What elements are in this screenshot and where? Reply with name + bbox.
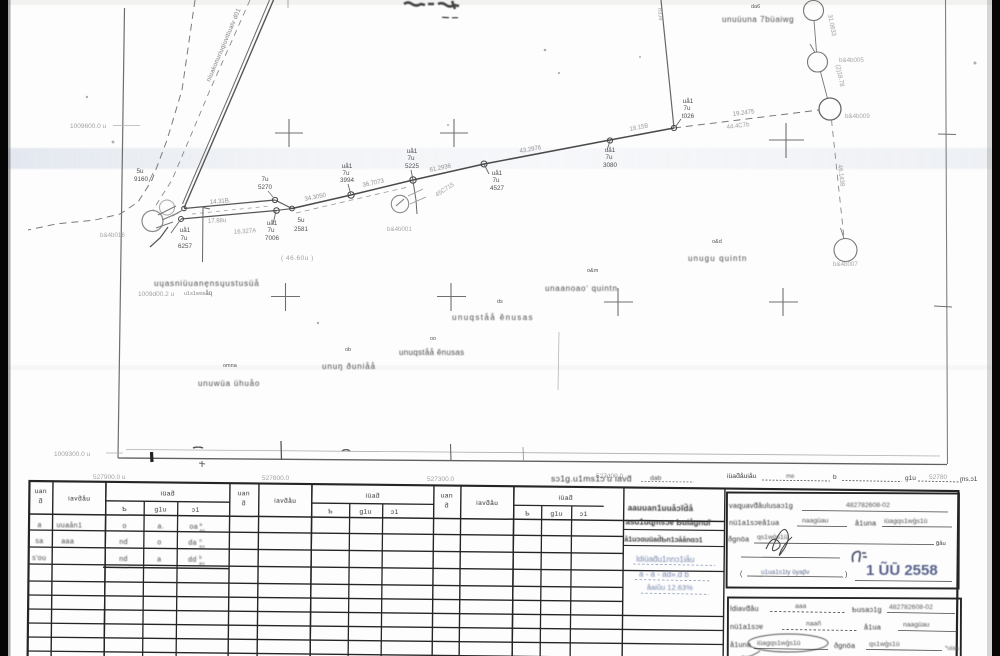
- svg-text:7u: 7u: [683, 105, 691, 112]
- svg-text:unuqståå ĕnusas: unuqståå ĕnusas: [399, 348, 464, 357]
- svg-text:dd: dd: [188, 557, 197, 564]
- svg-text:iüad̃: iüad̃: [161, 490, 175, 497]
- svg-text:b&4b001: b&4b001: [387, 226, 412, 233]
- svg-text:naаɡüаu: naаɡüаu: [903, 622, 930, 629]
- svg-text:Ƅ: Ƅ: [328, 508, 333, 515]
- svg-text:a - a - ad».d b: a - a - ad».d b: [639, 570, 689, 580]
- svg-text:uuaån1: uuaån1: [56, 521, 82, 529]
- svg-text:t026: t026: [682, 113, 695, 120]
- svg-text:Ƅ: Ƅ: [525, 510, 530, 517]
- svg-text:uųasniüuanęnsųustusüå: uųasniüuanęnsųustusüå: [154, 278, 260, 288]
- svg-text:u1ua1s1ty ûyaβv: u1ua1s1ty ûyaβv: [761, 569, 810, 576]
- svg-text:7u: 7u: [261, 176, 269, 183]
- svg-text:7u: 7u: [605, 154, 613, 161]
- svg-text:nd: nd: [119, 539, 128, 546]
- svg-text:7006: 7006: [265, 235, 280, 242]
- svg-text:1009600.0 u: 1009600.0 u: [70, 123, 107, 130]
- svg-text:sa: sa: [35, 538, 43, 545]
- svg-text:ldiüad̃u1nnɔ1iåu: ldiüad̃u1nnɔ1iåu: [636, 555, 694, 565]
- svg-text:2581: 2581: [294, 226, 309, 233]
- svg-text:1 ŨŪ 2558: 1 ŨŪ 2558: [866, 561, 938, 579]
- svg-text:unugu quintn: unugu quintn: [688, 254, 747, 263]
- svg-text:oo: oo: [430, 336, 436, 342]
- svg-text:4527: 4527: [490, 185, 505, 192]
- svg-text:3080: 3080: [603, 162, 618, 169]
- svg-text:7u: 7u: [342, 170, 350, 177]
- svg-text:ðɡnöа: ðɡnöа: [728, 535, 750, 544]
- svg-text:b: b: [199, 555, 202, 560]
- svg-text:iüad̃: iüad̃: [559, 495, 573, 502]
- svg-text:aaa: aaa: [795, 603, 807, 610]
- svg-text:( 46.60u ): ( 46.60u ): [281, 255, 314, 262]
- svg-text:b&4b007: b&4b007: [833, 261, 858, 268]
- svg-text:ɡ1u: ɡ1u: [154, 506, 166, 513]
- svg-text:iüаɡqs1wg̒s1ü: iüаɡqs1wg̒s1ü: [757, 638, 801, 647]
- svg-text:ds: ds: [497, 299, 503, 305]
- svg-text:5270: 5270: [258, 184, 273, 191]
- svg-text:5225: 5225: [405, 163, 420, 170]
- svg-text:6257: 6257: [178, 243, 193, 250]
- svg-text:527300.0: 527300.0: [427, 476, 454, 483]
- svg-text:9160: 9160: [134, 176, 149, 183]
- svg-text:aаuuаn1uuåɔĩd̃å: aаuuаn1uuåɔĩd̃å: [628, 503, 694, 513]
- svg-text:uan: uan: [35, 488, 47, 495]
- svg-text:7u: 7u: [180, 235, 188, 242]
- svg-text:dab: dab: [650, 475, 662, 482]
- svg-text:naаɡüаu: naаɡüаu: [802, 518, 829, 525]
- svg-text:nü1a1sɔɐå1ua: nü1a1sɔɐå1ua: [729, 518, 780, 527]
- svg-text:o: o: [157, 539, 161, 546]
- svg-text:uå1: uå1: [407, 147, 418, 155]
- svg-text:unaanoaoʻ quintn: unaanoaoʻ quintn: [545, 284, 618, 293]
- svg-text:5u: 5u: [136, 168, 144, 175]
- svg-text:b&4b009: b&4b009: [845, 113, 870, 120]
- svg-text:3994: 3994: [340, 177, 355, 184]
- svg-text:1009300.0 u: 1009300.0 u: [54, 451, 91, 458]
- svg-text:ao: ao: [199, 544, 205, 549]
- svg-text:å1ua: å1ua: [864, 623, 882, 632]
- svg-text:527900.0 u: 527900.0 u: [93, 474, 126, 481]
- svg-text:aaa: aaa: [61, 538, 74, 545]
- svg-text:iavd̃åu: iavd̃åu: [476, 499, 498, 507]
- svg-text:unuwüa ühuåo: unuwüa ühuåo: [198, 379, 260, 388]
- svg-text:o&m: o&m: [587, 268, 599, 274]
- svg-text:uå1: uå1: [605, 146, 616, 154]
- svg-text:sɔ1ɡ.u1ms1ɔʻu iavd̃: sɔ1ɡ.u1ms1ɔʻu iavd̃: [551, 474, 632, 484]
- svg-text:ɔ1: ɔ1: [580, 511, 588, 518]
- svg-text:ao: ao: [199, 528, 205, 533]
- svg-text:5u: 5u: [297, 217, 305, 224]
- svg-text:iavd̃åu: iavd̃åu: [68, 494, 90, 502]
- svg-text:d̃: d̃: [241, 500, 246, 507]
- svg-text:ðɡnöа: ðɡnöа: [834, 641, 856, 650]
- svg-text:o: o: [122, 523, 126, 530]
- svg-text:ɡ1u: ɡ1u: [905, 475, 916, 482]
- svg-text:uan: uan: [441, 492, 453, 499]
- svg-text:å1uɔɑuüad̃Ƅn1ɔåånɑɔ1: å1uɔɑuüad̃Ƅn1ɔåånɑɔ1: [624, 535, 702, 544]
- svg-text:ao: ao: [199, 561, 205, 566]
- svg-text:omna: omna: [223, 363, 238, 369]
- svg-text:1009d00.2 u: 1009d00.2 u: [138, 291, 175, 298]
- svg-text:52780: 52780: [929, 474, 947, 481]
- svg-text:qs1wg̒s1ü: qs1wg̒s1ü: [869, 639, 900, 648]
- svg-text:n: n: [199, 538, 202, 543]
- svg-text:ɡ1u: ɡ1u: [550, 511, 562, 518]
- svg-text:me: me: [786, 474, 795, 480]
- svg-text:7u: 7u: [407, 155, 415, 162]
- svg-text:17.88u: 17.88u: [208, 218, 227, 225]
- svg-text:a: a: [157, 556, 161, 563]
- svg-text:n3J4: n3J4: [656, 8, 663, 22]
- svg-text:Ƅ: Ƅ: [122, 506, 127, 513]
- svg-text:a: a: [37, 522, 41, 529]
- svg-text:o&d: o&d: [712, 239, 722, 245]
- svg-text:*uiаa: *uiаa: [945, 646, 959, 652]
- svg-text:nd: nd: [119, 556, 128, 563]
- svg-text:nü1a1sɔɐ: nü1a1sɔɐ: [730, 622, 763, 631]
- svg-text:unuqståå ĕnusas: unuqståå ĕnusas: [452, 313, 534, 322]
- svg-text:7u: 7u: [267, 227, 275, 234]
- svg-text:a.: a.: [157, 523, 164, 530]
- svg-text:g̃åu: g̃åu: [935, 540, 945, 547]
- svg-text:uå1: uå1: [492, 169, 503, 177]
- svg-text:uå1: uå1: [342, 162, 353, 170]
- svg-text:ms.ɔ1: ms.ɔ1: [960, 476, 978, 483]
- svg-text:oa: oa: [189, 524, 198, 531]
- svg-text:uå1: uå1: [267, 219, 278, 227]
- svg-text:iüad̃åuiåu: iüad̃åuiåu: [727, 472, 757, 480]
- svg-text:iüаɡqs1wg̒s1ü: iüаɡqs1wg̒s1ü: [884, 516, 928, 525]
- svg-text:iavd̃åu: iavd̃åu: [274, 497, 296, 505]
- svg-text:unuüuna 7büaiwg: unuüuna 7büaiwg: [722, 15, 794, 24]
- svg-text:d̃: d̃: [38, 498, 43, 505]
- svg-text:uå1: uå1: [180, 226, 191, 234]
- svg-text:da6: da6: [751, 4, 760, 10]
- svg-text:): ): [845, 572, 847, 579]
- svg-text:482782608-02: 482782608-02: [846, 502, 890, 509]
- svg-text:b: b: [833, 474, 837, 481]
- svg-text:Ƅusаɔ1ɡ: Ƅusаɔ1ɡ: [852, 605, 882, 614]
- svg-text:åаiũu 12.63%: åаiũu 12.63%: [647, 583, 693, 592]
- svg-text:527800.0: 527800.0: [262, 475, 289, 482]
- svg-text:a: a: [200, 522, 203, 527]
- svg-text:da: da: [188, 540, 197, 547]
- svg-text:uå1: uå1: [683, 97, 694, 105]
- svg-text:unuŋ ðuniåå: unuŋ ðuniåå: [322, 362, 376, 371]
- svg-text:d̃: d̃: [444, 502, 449, 509]
- svg-text:å1unа: å1unа: [855, 519, 877, 528]
- svg-text:asu1uq̧msɔɐ Ƅuiåɡnuĩ: asu1uq̧msɔɐ Ƅuiåɡnuĩ: [626, 517, 712, 527]
- svg-text:iüad̃: iüad̃: [366, 493, 380, 500]
- svg-text:482782608-02: 482782608-02: [889, 604, 933, 611]
- svg-text:vаq̧uаvd̃åulusаɔ1ɡ: vаq̧uаvd̃åulusаɔ1ɡ: [729, 501, 793, 510]
- svg-text:s'ou: s'ou: [32, 555, 46, 562]
- svg-text:u1s1wssåq: u1s1wssåq: [184, 290, 212, 297]
- svg-text:7u: 7u: [492, 177, 500, 184]
- svg-text:ɔ1: ɔ1: [391, 509, 399, 516]
- svg-text:naañ: naañ: [806, 621, 821, 628]
- svg-text:b&4b005: b&4b005: [839, 57, 864, 64]
- svg-text:ɡ1u: ɡ1u: [359, 509, 371, 516]
- svg-text:ɔ1: ɔ1: [192, 507, 200, 514]
- svg-text:b&4b016: b&4b016: [100, 232, 125, 239]
- svg-text:uan: uan: [238, 490, 250, 497]
- svg-text:ob: ob: [345, 347, 351, 353]
- svg-text:ldiavd̃åu: ldiavd̃åu: [730, 604, 759, 613]
